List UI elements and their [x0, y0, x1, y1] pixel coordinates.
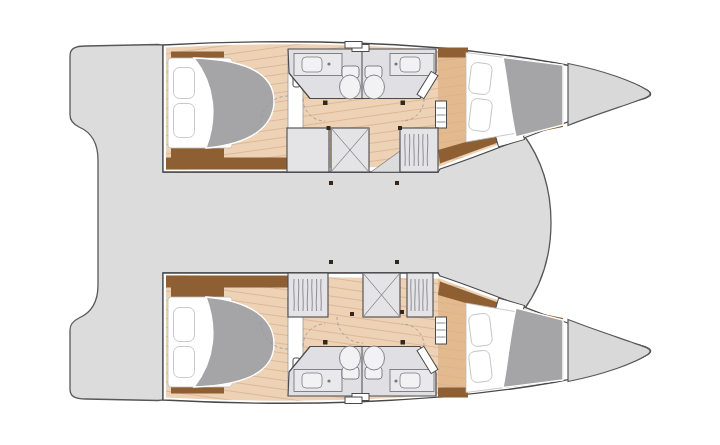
saloon-door-post: [395, 260, 399, 264]
saloon-door-post: [395, 181, 399, 185]
cabinet-plain: [287, 128, 329, 172]
cabinet-knob: [350, 312, 354, 316]
cabinet-knob: [400, 310, 404, 314]
saloon-door-post: [329, 260, 333, 264]
saloon-door-post: [329, 181, 333, 185]
cabinet-knob: [327, 126, 331, 130]
catamaran-floorplan-canvas: [0, 0, 720, 445]
floorplan-page: [0, 0, 720, 445]
cabinet-knob: [398, 126, 402, 130]
